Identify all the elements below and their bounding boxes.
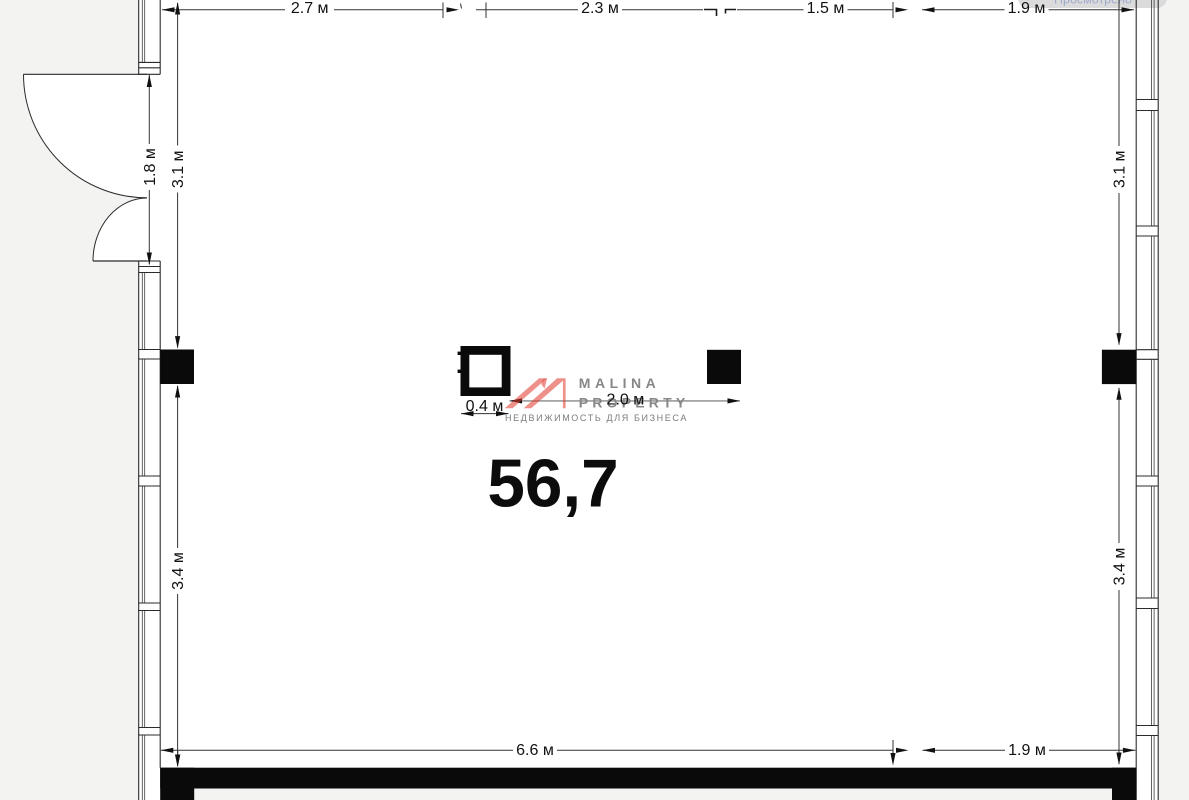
svg-text:Просмотрено: Просмотрено xyxy=(1054,0,1132,7)
svg-text:MALINA: MALINA xyxy=(579,375,660,391)
svg-text:3.4 м: 3.4 м xyxy=(170,552,187,590)
svg-text:6.6 м: 6.6 м xyxy=(516,742,554,759)
svg-text:56,7: 56,7 xyxy=(487,447,618,522)
svg-text:3.1 м: 3.1 м xyxy=(170,150,187,188)
svg-text:0.4 м: 0.4 м xyxy=(466,398,504,415)
svg-text:3.1 м: 3.1 м xyxy=(1112,150,1129,188)
svg-text:1.5 м: 1.5 м xyxy=(807,0,845,17)
svg-text:НЕДВИЖИМОСТЬ ДЛЯ БИЗНЕСА: НЕДВИЖИМОСТЬ ДЛЯ БИЗНЕСА xyxy=(505,413,688,423)
svg-text:2.7 м: 2.7 м xyxy=(291,0,329,17)
svg-text:1.8 м: 1.8 м xyxy=(142,148,159,186)
svg-text:2.3 м: 2.3 м xyxy=(581,0,619,17)
svg-text:3.4 м: 3.4 м xyxy=(1112,548,1129,586)
svg-text:1.9 м: 1.9 м xyxy=(1008,742,1046,759)
svg-text:2.0 м: 2.0 м xyxy=(607,391,645,408)
svg-text:1.9 м: 1.9 м xyxy=(1008,0,1046,17)
